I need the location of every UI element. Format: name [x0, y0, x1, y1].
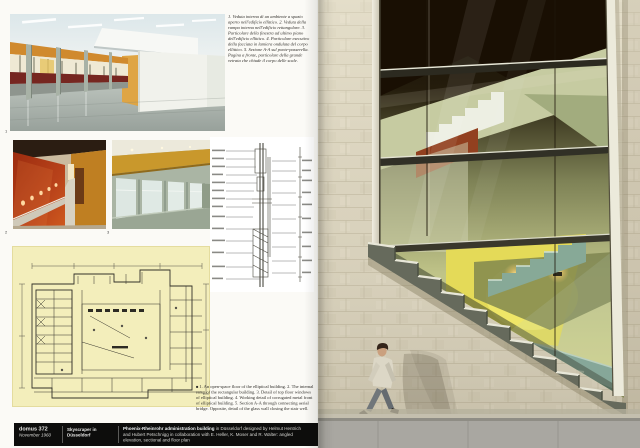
figure-number-1: 1: [5, 129, 13, 134]
photo-open-space-interior: [10, 14, 225, 131]
credit-building: Phoenix-Rheinrohr administration buildin…: [123, 426, 215, 431]
caption-english: ■1. An open-space floor of the elliptica…: [196, 384, 314, 418]
photo-red-ramp-interior: [13, 140, 106, 229]
footer-issue-cell: domus 372 November 1960: [14, 423, 62, 446]
photo-glass-stairwell-facade: [318, 0, 640, 448]
caption-marker: ■: [196, 385, 198, 390]
figure-number-3: 3: [107, 230, 115, 235]
issue-date: November 1960: [19, 432, 61, 437]
footer-credit-cell: Phoenix-Rheinrohr administration buildin…: [119, 423, 318, 446]
credit-line1: in Düsseldorf designed by Helmut Hentric…: [215, 426, 302, 431]
caption-italian: 1. Veduta interna di un ambiente a spazi…: [228, 14, 314, 66]
drawing-floor-plan: [12, 246, 210, 407]
magazine-spread: 1. Veduta interna di un ambiente a spazi…: [0, 0, 640, 448]
footer-title-cell: Skyscraper in Düsseldorf: [63, 423, 118, 446]
article-title: Skyscraper in Düsseldorf: [67, 427, 117, 438]
photo-window-band-interior: [112, 140, 210, 229]
drawing-facade-section: [210, 137, 314, 292]
credit-line3: elevation, sectional and floor plan: [123, 438, 317, 444]
pavement: [318, 414, 640, 418]
figure-number-2: 2: [5, 230, 13, 235]
glass-frame-left-jamb: [372, 0, 380, 252]
left-page: 1. Veduta interna di un ambiente a spazi…: [0, 0, 318, 448]
caption-english-text: 1. An open-space floor of the elliptical…: [196, 384, 313, 411]
footer-bar: domus 372 November 1960 Skyscraper in Dü…: [14, 423, 318, 446]
